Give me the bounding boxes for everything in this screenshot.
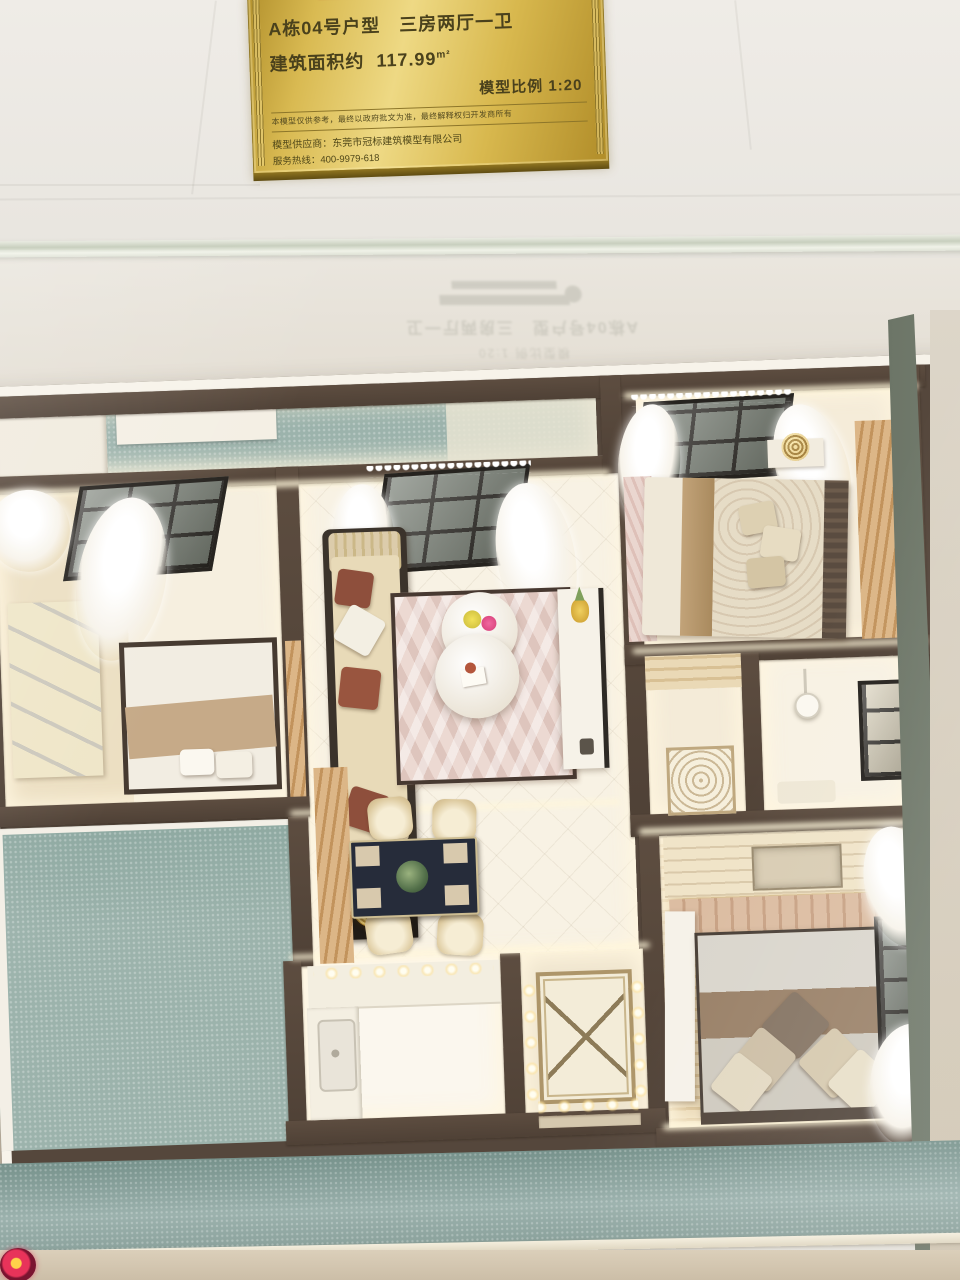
dining-chair: [366, 795, 414, 841]
pineapple-decor: [571, 598, 590, 623]
foyer-floor-medallion: [536, 969, 637, 1104]
base-fabric-cutout: [0, 819, 299, 1151]
bath-mat: [777, 780, 836, 804]
glass-top-edge-line: [0, 193, 960, 200]
plaque-reflection-in-glass: 模型比例 1:20 A栋04号户型 三房两厅一卫: [316, 250, 724, 362]
headboard: [822, 480, 849, 638]
plaque-border-right: [591, 0, 604, 154]
unit-info-plaque: A栋04号户型 三房两厅一卫 建筑面积约 117.99m² 模型比例 1:20 …: [247, 0, 609, 174]
dining-chair: [436, 912, 484, 956]
hallway-ceiling-beam: [645, 653, 742, 690]
wardrobe-slab: [665, 911, 695, 1101]
bed: [119, 637, 282, 794]
area-value: 117.99: [376, 49, 437, 71]
sales-office-model-photo: 模型比例 1:20 A栋04号户型 三房两厅一卫: [0, 0, 960, 1280]
reflected-logo-mark: [428, 277, 610, 311]
case-side-panel: [930, 310, 960, 1280]
bed-runner: [680, 478, 715, 637]
reflection-light-dot: [0, 1248, 36, 1280]
table-front: [0, 1250, 960, 1280]
dining-chair: [432, 799, 477, 842]
ceiling-frame: [751, 844, 842, 891]
wall-seam: [0, 184, 260, 186]
pillow: [180, 749, 215, 776]
area-unit: m²: [436, 49, 451, 60]
pillow: [334, 568, 375, 609]
placemat: [443, 843, 468, 864]
placemat: [445, 885, 470, 906]
hallway-ornate-door: [666, 745, 736, 815]
pillow: [338, 666, 382, 710]
dining-wood-floor: [313, 767, 354, 964]
bed: [642, 477, 849, 639]
unit-type-text: A栋04号户型 三房两厅一卫: [268, 5, 585, 42]
apartment-scale-model: [0, 344, 960, 1199]
pillow: [746, 556, 786, 589]
console-decor: [580, 738, 595, 754]
reflected-unit-text: A栋04号户型 三房两厅一卫: [321, 317, 723, 341]
flower-decor-pink: [481, 616, 497, 632]
area-label: 建筑面积约: [269, 51, 365, 74]
placemat: [357, 888, 382, 909]
wall-seam: [191, 1, 217, 195]
table-plant: [396, 860, 429, 893]
area-text: 建筑面积约 117.99m²: [269, 40, 586, 77]
wall-seam: [734, 0, 752, 149]
plaque-border-left: [252, 0, 265, 166]
scale-text: 模型比例 1:20: [270, 73, 587, 105]
pillow: [216, 751, 253, 778]
flower-decor-yellow: [463, 610, 482, 629]
dining-table: [349, 836, 480, 918]
placemat: [355, 846, 380, 867]
bed: [694, 926, 888, 1116]
